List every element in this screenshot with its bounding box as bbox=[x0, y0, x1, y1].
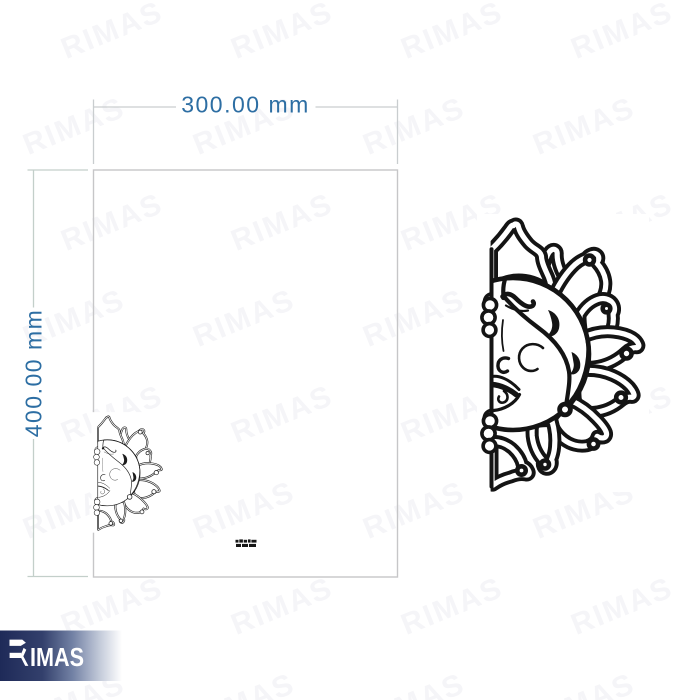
svg-text:RIMAS: RIMAS bbox=[359, 475, 470, 546]
svg-text:RIMAS: RIMAS bbox=[359, 283, 470, 354]
svg-text:RIMAS: RIMAS bbox=[397, 571, 508, 642]
svg-text:300.00 mm: 300.00 mm bbox=[181, 92, 310, 118]
svg-text:RIMAS: RIMAS bbox=[189, 475, 300, 546]
svg-text:RIMAS: RIMAS bbox=[189, 283, 300, 354]
svg-text:RIMAS: RIMAS bbox=[529, 667, 640, 700]
svg-text:RIMAS: RIMAS bbox=[359, 91, 470, 162]
svg-text:RIMAS: RIMAS bbox=[359, 667, 470, 700]
svg-text:RIMAS: RIMAS bbox=[397, 0, 508, 66]
svg-text:RIMAS: RIMAS bbox=[567, 0, 678, 66]
svg-text:400.00 mm: 400.00 mm bbox=[21, 309, 47, 438]
svg-text:RIMAS: RIMAS bbox=[227, 0, 338, 66]
svg-text:RIMAS: RIMAS bbox=[57, 0, 168, 66]
svg-text:RIMAS: RIMAS bbox=[227, 571, 338, 642]
svg-text:RIMAS: RIMAS bbox=[227, 379, 338, 450]
svg-text:RIMAS: RIMAS bbox=[189, 667, 300, 700]
svg-text:RIMAS: RIMAS bbox=[19, 91, 130, 162]
svg-text:RIMAS: RIMAS bbox=[529, 91, 640, 162]
svg-text:RIMAS: RIMAS bbox=[227, 187, 338, 258]
svg-text:RIMAS: RIMAS bbox=[57, 187, 168, 258]
svg-text:IMAS: IMAS bbox=[30, 644, 84, 672]
svg-text:RIMAS: RIMAS bbox=[567, 571, 678, 642]
